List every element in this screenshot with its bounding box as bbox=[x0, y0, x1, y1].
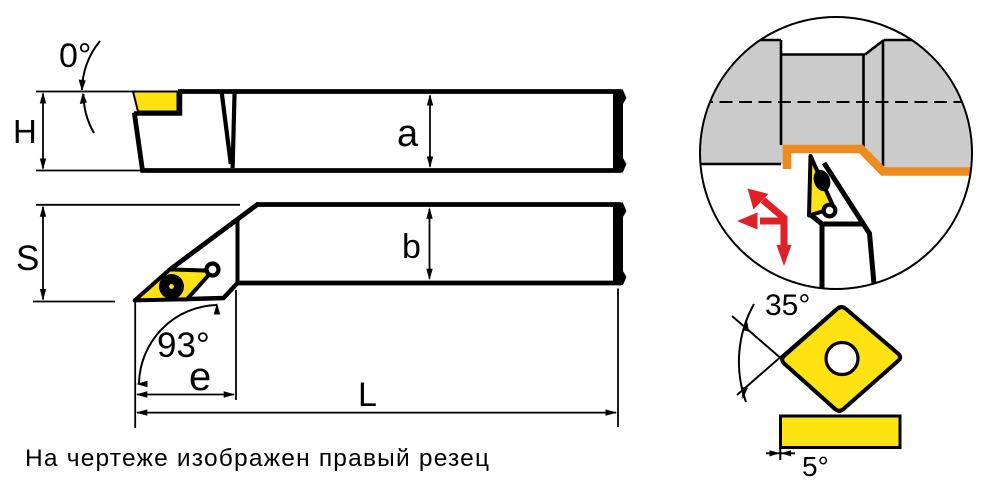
svg-text:S: S bbox=[16, 239, 39, 278]
svg-text:L: L bbox=[358, 376, 377, 414]
svg-text:e: e bbox=[189, 355, 211, 399]
svg-text:a: a bbox=[397, 113, 419, 155]
svg-text:5°: 5° bbox=[802, 451, 829, 482]
svg-text:На чертеже изображен правый ре: На чертеже изображен правый резец bbox=[25, 445, 490, 472]
svg-text:b: b bbox=[402, 228, 421, 266]
svg-text:35°: 35° bbox=[765, 289, 810, 322]
svg-text:0°: 0° bbox=[59, 37, 92, 75]
svg-text:H: H bbox=[13, 113, 37, 150]
